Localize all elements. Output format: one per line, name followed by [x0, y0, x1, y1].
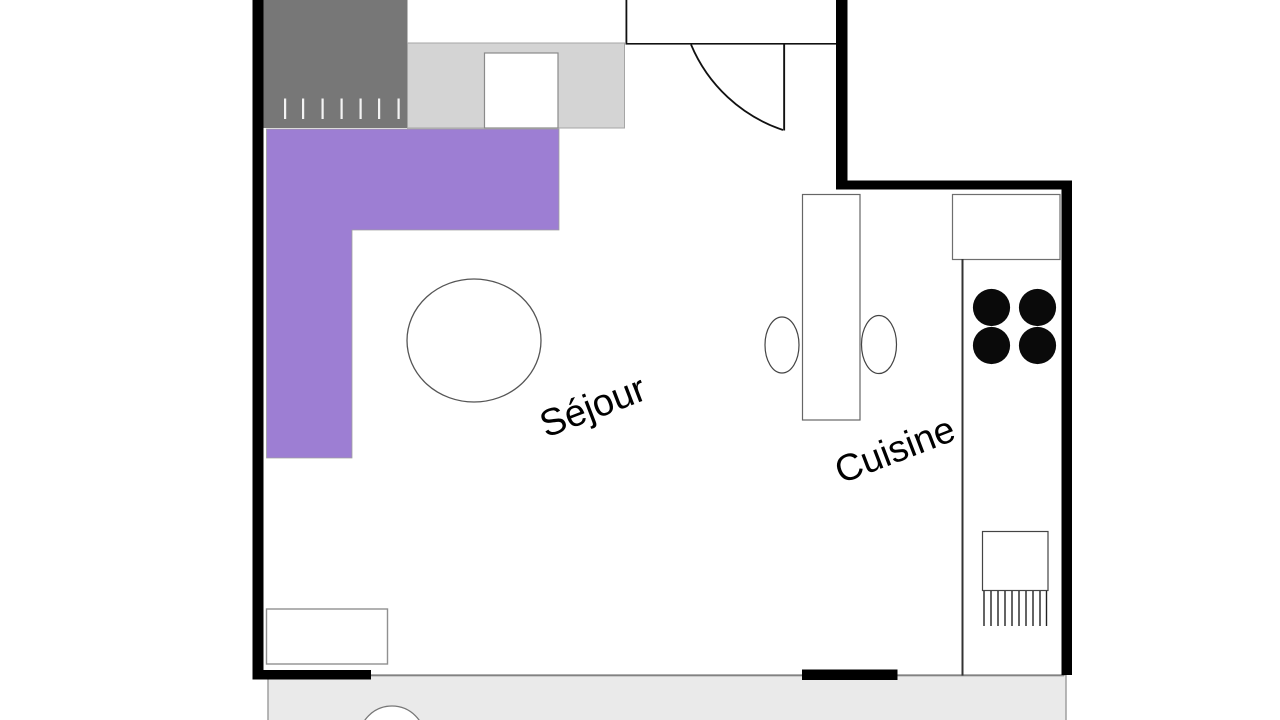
svg-text:Séjour: Séjour	[534, 368, 652, 447]
